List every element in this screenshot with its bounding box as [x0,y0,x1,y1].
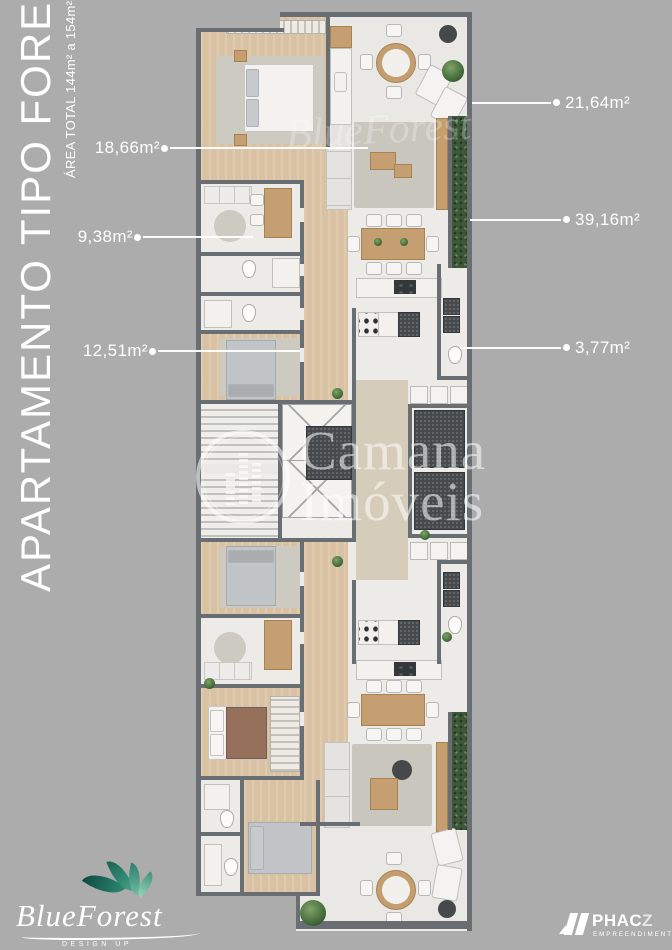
chair [406,214,422,227]
area-label-terrace: 21,64m² [565,93,630,113]
brand-script-watermark: BlueForest [285,101,472,159]
chair [386,852,402,865]
shower [204,300,232,328]
leader-dot [563,344,570,351]
plant [442,632,452,642]
area-label-laundry: 3,77m² [575,338,630,358]
shower [204,784,230,810]
hedge [452,712,467,830]
palm-plant [442,60,464,82]
agency-name-line2: Imóveis [300,477,486,528]
pillow [210,734,224,756]
wall-bedroom-bl2 [316,780,320,892]
pillow [246,69,259,97]
coffee-table [370,152,396,170]
chair [366,262,382,275]
pouf [439,25,457,43]
wall-bath-bl-sep [196,832,244,836]
leader-line [158,350,300,352]
blueforest-underline [22,932,200,940]
cooktop [394,280,416,294]
nightstand [234,50,247,62]
area-label-living: 39,16m² [575,210,640,230]
floor-plant [300,900,326,926]
door-mat [430,386,448,404]
office-sofa [204,186,252,204]
toilet [448,616,462,634]
round-dining-table [376,870,416,910]
wall-bottom [296,921,472,929]
chair [386,728,402,741]
pillow [210,710,224,732]
leader-dot [161,145,168,152]
toilet [220,810,234,828]
sofa [324,742,350,828]
stove [358,312,380,337]
wall-bath-sep [196,292,304,296]
desk [264,620,292,670]
chair [347,702,360,718]
chair [366,214,382,227]
door-mat [450,542,468,560]
kitchen-counter [378,620,400,645]
wall-office2-bottom [196,614,304,618]
chair [426,702,439,718]
chair [386,680,402,693]
wall-bedroom2-top [196,330,304,334]
wall-top [280,12,472,17]
pillow [246,99,259,127]
door-gap [300,264,304,276]
wall-laundry2 [437,564,441,664]
leader-dot [134,234,141,241]
plant [204,678,215,689]
area-label-suite: 18,66m² [88,138,160,158]
plant [332,388,343,399]
toilet [242,260,256,278]
side-table [392,760,412,780]
vanity [272,258,300,288]
side-table [394,164,412,178]
wall-laundry2-top [437,560,467,564]
wall-hedge2 [448,712,452,830]
chair [406,728,422,741]
wall-lobby-top [408,404,467,408]
wall-kitchen2 [352,580,356,664]
door-gap [300,712,304,726]
fridge [398,312,420,337]
leader-dot [553,99,560,106]
pillow [228,384,274,397]
chair [426,236,439,252]
kitchen-counter [378,312,400,337]
coffee-table [370,778,398,810]
page-subtitle: ÁREA TOTAL 144m² a 154m² [62,20,80,178]
page-title: APARTAMENTO TIPO FOREST [8,14,64,592]
blueforest-tagline: DESIGN UP [62,941,132,948]
wall-kitchen-back [352,308,356,380]
stove [358,620,380,645]
agency-watermark-text: Camana Imóveis [300,426,486,527]
cooktop [394,662,416,676]
wall-laundry-top [437,264,441,380]
leader-line [460,347,561,349]
blueforest-name: BlueForest [16,898,163,934]
chair [386,24,402,37]
wall-core-top [196,400,356,404]
cabinet [330,26,352,48]
washer [443,298,460,315]
sink [334,72,347,92]
door-gap [300,208,304,222]
agency-logo-ring [202,436,284,518]
plant [332,556,343,567]
leader-dot [149,348,156,355]
door-mat [410,542,428,560]
blueforest-logo: BlueForest DESIGN UP [16,856,216,948]
table-plant [400,238,408,246]
chair [250,214,264,226]
chair [418,880,431,896]
round-dining-table [376,43,416,83]
corner-notch-top [196,12,280,28]
leader-line [472,102,551,104]
door-gap [300,572,304,586]
wall-top-step [196,28,284,32]
chair [250,194,264,206]
chair [360,880,373,896]
dining-table [361,228,425,260]
fridge [398,620,420,645]
wall-laundry-bottom [437,376,467,380]
toilet [242,304,256,322]
chair [386,214,402,227]
round-rug [214,632,246,664]
chair [366,680,382,693]
phacz-name: PHACZ [592,911,653,931]
chair [386,86,402,99]
tv-panel [436,742,448,832]
leader-line [470,219,561,221]
chair [406,262,422,275]
agency-logo-icon [196,430,290,524]
dining-table [361,694,425,726]
pillow [228,550,274,563]
desk [264,188,292,238]
door-mat [410,386,428,404]
wall-bath-sep [196,252,304,256]
toilet [224,858,238,876]
door-mat [450,386,468,404]
chair [347,236,360,252]
dryer [443,590,460,607]
chair [406,680,422,693]
phacz-logo: PHACZ EMPREENDIMENTOS [558,910,668,946]
door-mat [430,542,448,560]
door-gap [300,348,304,362]
leader-dot [563,216,570,223]
washer [443,572,460,589]
agency-name-line1: Camana [300,426,486,477]
phacz-tagline: EMPREENDIMENTOS [593,931,672,938]
nightstand [234,134,247,146]
wall-bath-bl-top [196,776,304,780]
dryer [443,316,460,333]
area-label-office: 9,38m² [61,227,133,247]
table-plant [374,238,382,246]
wardrobe [270,696,300,772]
agency-watermark: Camana Imóveis [196,414,506,539]
phacz-name-z: Z [642,911,653,930]
area-label-bedroom: 12,51m² [76,341,148,361]
door-gap [300,632,304,644]
chair [386,262,402,275]
chair [360,54,373,70]
pillow [250,826,264,870]
chair [366,728,382,741]
leader-line [170,147,368,149]
bed-blanket [226,707,267,759]
wall-bath-bl [240,780,244,892]
wall-office-top [196,180,304,184]
phacz-name-main: PHAC [592,911,642,930]
door-gap [300,308,304,320]
pouf [438,900,456,918]
wall-terrace2 [300,822,360,826]
leader-line [143,236,253,238]
